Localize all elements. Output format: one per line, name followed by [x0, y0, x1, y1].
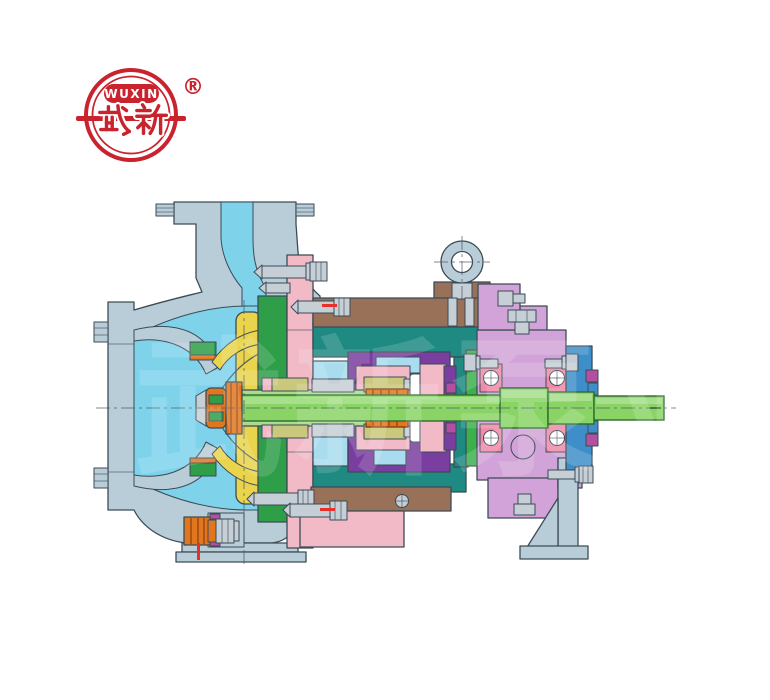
red-mark-bottom	[320, 508, 335, 511]
suction-flange	[94, 322, 108, 488]
pump-cross-section-diagram: 武新泵业 WUXIN ®	[0, 0, 770, 700]
red-mark-top	[322, 304, 337, 307]
pump-diagram-page: 武新泵业 WUXIN ®	[0, 0, 770, 700]
drain-plugs	[184, 513, 244, 547]
brand-logo: WUXIN ®	[76, 70, 204, 160]
red-mark-foot	[197, 543, 200, 560]
watermark-text: 武新泵业	[134, 324, 766, 498]
registered-trademark: ®	[182, 75, 204, 100]
logo-brand-latin: WUXIN	[104, 87, 158, 101]
